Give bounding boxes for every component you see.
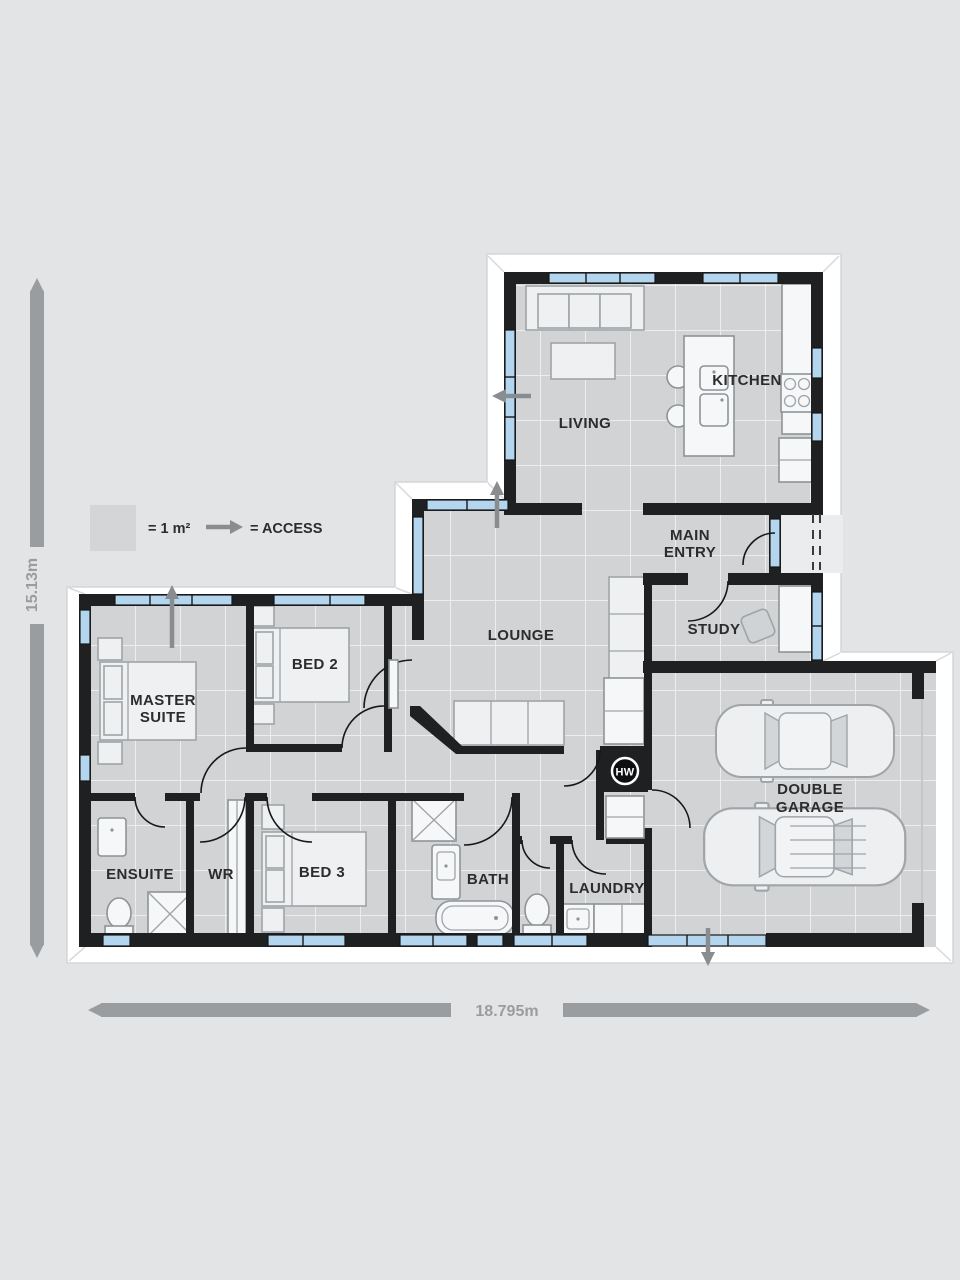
window [413, 517, 423, 594]
sofa-icon [454, 701, 564, 745]
legend: = 1 m² = ACCESS [90, 505, 323, 551]
legend-area-label: = 1 m² [148, 521, 190, 537]
floor-plan-page: HW LIVING KITCHEN MAIN ENTRY STUDY L [0, 0, 960, 1280]
vanity-sink-icon [98, 818, 126, 856]
room-label-master-2: SUITE [140, 709, 186, 726]
hall-closet-icon [604, 678, 644, 744]
room-label-living: LIVING [559, 415, 611, 432]
room-label-main-entry-2: ENTRY [664, 544, 716, 561]
nightstand-icon [98, 638, 122, 660]
window [80, 610, 90, 644]
wc-fixtures [523, 894, 551, 936]
window [812, 348, 822, 378]
laundry-counter-icon [594, 904, 650, 934]
nightstand-icon [262, 908, 284, 932]
window [274, 595, 365, 605]
room-label-study: STUDY [688, 621, 741, 638]
nightstand-icon [98, 742, 122, 764]
room-label-laundry: LAUNDRY [569, 880, 645, 897]
vanity-sink-icon [432, 845, 460, 899]
bathtub-icon [436, 901, 514, 935]
nightstand-icon [252, 704, 274, 724]
room-label-garage-2: GARAGE [776, 799, 844, 816]
floor-plan-drawing: HW LIVING KITCHEN MAIN ENTRY STUDY L [0, 0, 960, 1280]
window [477, 935, 503, 946]
toilet-icon [105, 898, 133, 937]
vertical-dimension: 15.13m [24, 278, 44, 958]
nightstand-icon [262, 805, 284, 829]
stove-icon [781, 374, 813, 412]
window [812, 413, 822, 441]
toilet-icon [523, 894, 551, 936]
access-arrow-icon [206, 520, 243, 534]
sofa-icon [609, 577, 645, 689]
room-label-ensuite: ENSUITE [106, 866, 174, 883]
legend-access-label: = ACCESS [250, 521, 323, 537]
room-label-master-1: MASTER [130, 692, 196, 709]
sofa-icon [526, 286, 644, 330]
window [549, 273, 655, 283]
door-leaf [389, 660, 398, 708]
desk-icon [779, 586, 813, 652]
room-label-bed3: BED 3 [299, 864, 345, 881]
laundry-fixtures [562, 904, 650, 934]
shower-icon [148, 892, 192, 936]
horizontal-dimension-label: 18.795m [475, 1003, 538, 1020]
nightstand-icon [252, 606, 274, 626]
window [514, 935, 587, 946]
room-label-kitchen: KITCHEN [712, 372, 781, 389]
window [103, 935, 130, 946]
laundry-sink-icon [562, 904, 594, 934]
hw-cupboard-icon [606, 796, 644, 838]
room-label-bath: BATH [467, 871, 509, 888]
room-label-garage-1: DOUBLE [777, 781, 843, 798]
horizontal-dimension: 18.795m [88, 1003, 930, 1020]
hw-label: HW [616, 767, 635, 779]
room-label-main-entry-1: MAIN [670, 527, 710, 544]
front-door-glazing [770, 519, 780, 567]
window [268, 935, 345, 946]
fridge-icon [779, 438, 813, 482]
room-label-wr: WR [208, 866, 234, 883]
room-label-bed2: BED 2 [292, 656, 338, 673]
shower-icon [412, 799, 456, 841]
vertical-dimension-label: 15.13m [24, 558, 41, 612]
window [80, 755, 90, 781]
room-label-lounge: LOUNGE [488, 627, 555, 644]
legend-area-swatch [90, 505, 136, 551]
coffee-table-icon [551, 343, 615, 379]
